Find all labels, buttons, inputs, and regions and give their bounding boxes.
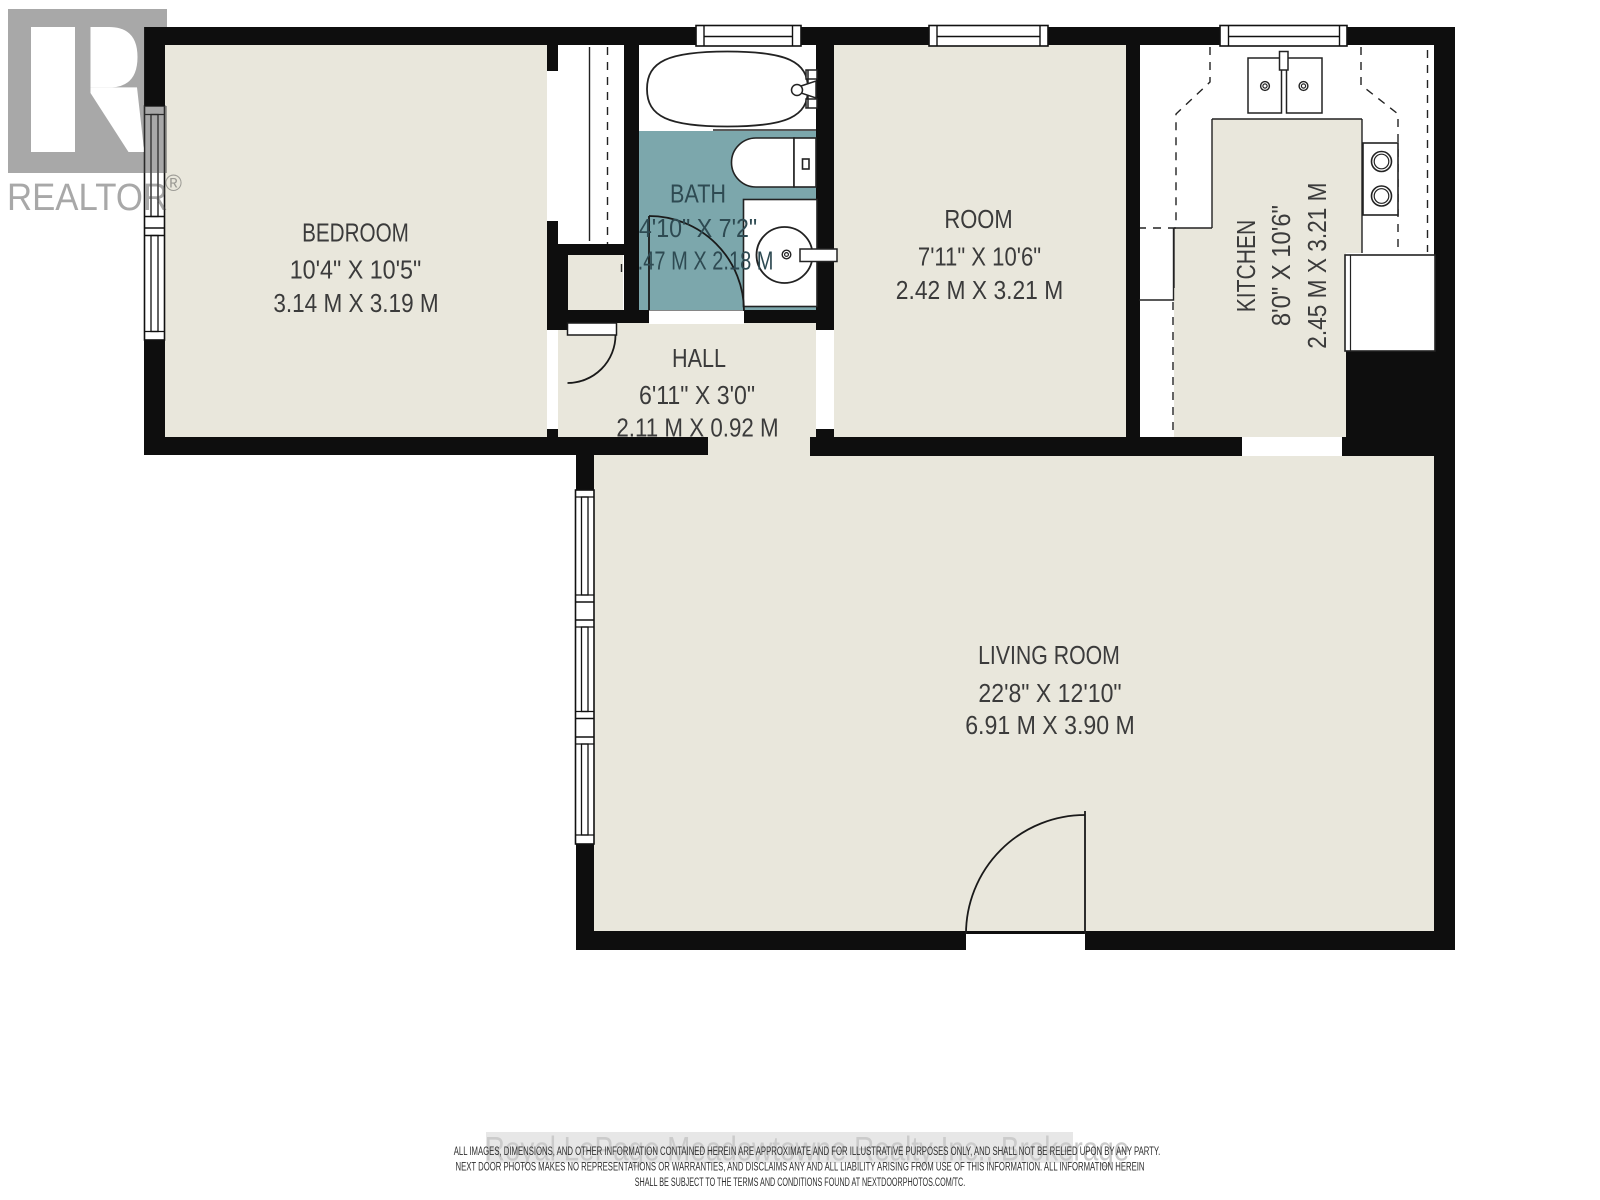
svg-text:LIVING ROOM: LIVING ROOM (978, 641, 1120, 669)
svg-text:KITCHEN: KITCHEN (1232, 220, 1260, 313)
svg-text:NEXT DOOR PHOTOS MAKES NO REPR: NEXT DOOR PHOTOS MAKES NO REPRESENTATION… (456, 1161, 1145, 1174)
svg-text:3.14 M X 3.19 M: 3.14 M X 3.19 M (273, 289, 438, 318)
svg-text:®: ® (165, 170, 182, 196)
svg-text:BATH: BATH (670, 181, 726, 209)
svg-text:BEDROOM: BEDROOM (302, 218, 409, 247)
svg-text:7'11" X 10'6": 7'11" X 10'6" (918, 243, 1041, 272)
svg-text:SHALL BE SUBJECT TO THE TERMS: SHALL BE SUBJECT TO THE TERMS AND CONDIT… (635, 1176, 965, 1189)
svg-text:REALTOR: REALTOR (7, 176, 168, 219)
svg-text:2.45 M X 3.21 M: 2.45 M X 3.21 M (1304, 182, 1333, 348)
svg-text:ALL IMAGES, DIMENSIONS, AND OT: ALL IMAGES, DIMENSIONS, AND OTHER INFORM… (454, 1145, 1160, 1158)
svg-text:6'11" X 3'0": 6'11" X 3'0" (639, 382, 755, 410)
svg-text:1.47 M X 2.18 M: 1.47 M X 2.18 M (627, 246, 774, 275)
svg-text:8'0" X 10'6": 8'0" X 10'6" (1268, 205, 1296, 326)
svg-text:22'8" X 12'10": 22'8" X 12'10" (978, 680, 1121, 708)
svg-text:10'4" X 10'5": 10'4" X 10'5" (290, 257, 422, 285)
svg-text:2.11 M X 0.92 M: 2.11 M X 0.92 M (616, 414, 778, 443)
svg-text:4'10" X 7'2": 4'10" X 7'2" (639, 215, 757, 243)
svg-text:2.42 M X 3.21 M: 2.42 M X 3.21 M (896, 277, 1063, 306)
svg-text:ROOM: ROOM (944, 206, 1012, 235)
svg-text:HALL: HALL (672, 345, 726, 373)
svg-text:6.91 M X 3.90 M: 6.91 M X 3.90 M (965, 712, 1135, 740)
